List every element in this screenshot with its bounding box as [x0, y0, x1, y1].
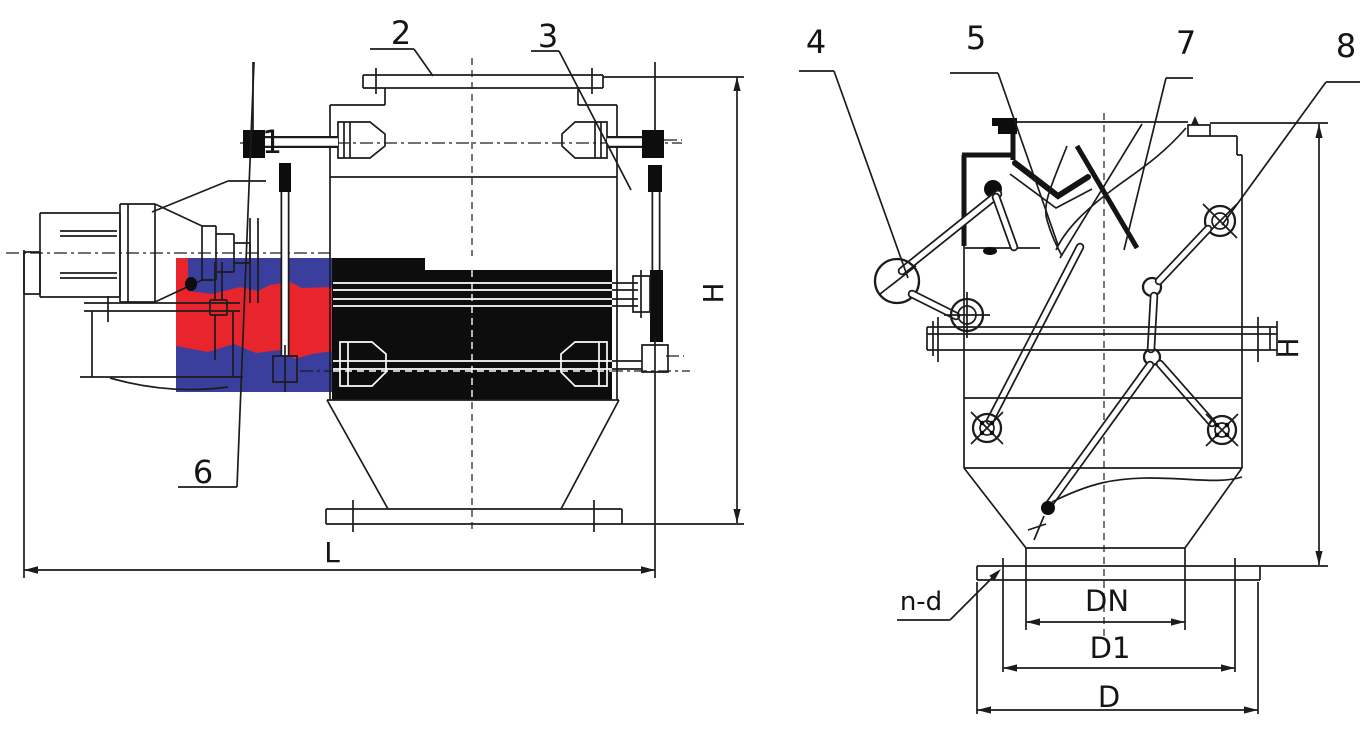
left-view	[6, 58, 744, 578]
highlight-overlay	[176, 258, 333, 392]
dim-label-D: D	[1098, 680, 1120, 714]
magnetic-separator-technical-drawing: 1 2 3 4 5 6 7 8 L H H DN D1 D n-d	[0, 0, 1372, 732]
dim-label-DN: DN	[1085, 584, 1129, 618]
dim-label-D1: D1	[1090, 631, 1131, 665]
dim-label-H-right: H	[1272, 337, 1305, 358]
drawing-canvas: 1 2 3 4 5 6 7 8 L H H DN D1 D n-d	[0, 0, 1372, 732]
callout-8: 8	[1336, 27, 1356, 65]
callout-5: 5	[966, 19, 986, 57]
callout-3: 3	[538, 17, 558, 55]
callout-1: 1	[262, 123, 282, 161]
callout-6: 6	[193, 453, 213, 491]
dim-label-H-left: H	[697, 282, 730, 303]
dim-label-n-d: n-d	[900, 587, 942, 617]
callout-7: 7	[1176, 24, 1196, 62]
callout-4: 4	[806, 23, 826, 61]
callout-2: 2	[391, 14, 411, 52]
dim-label-L: L	[324, 536, 340, 569]
